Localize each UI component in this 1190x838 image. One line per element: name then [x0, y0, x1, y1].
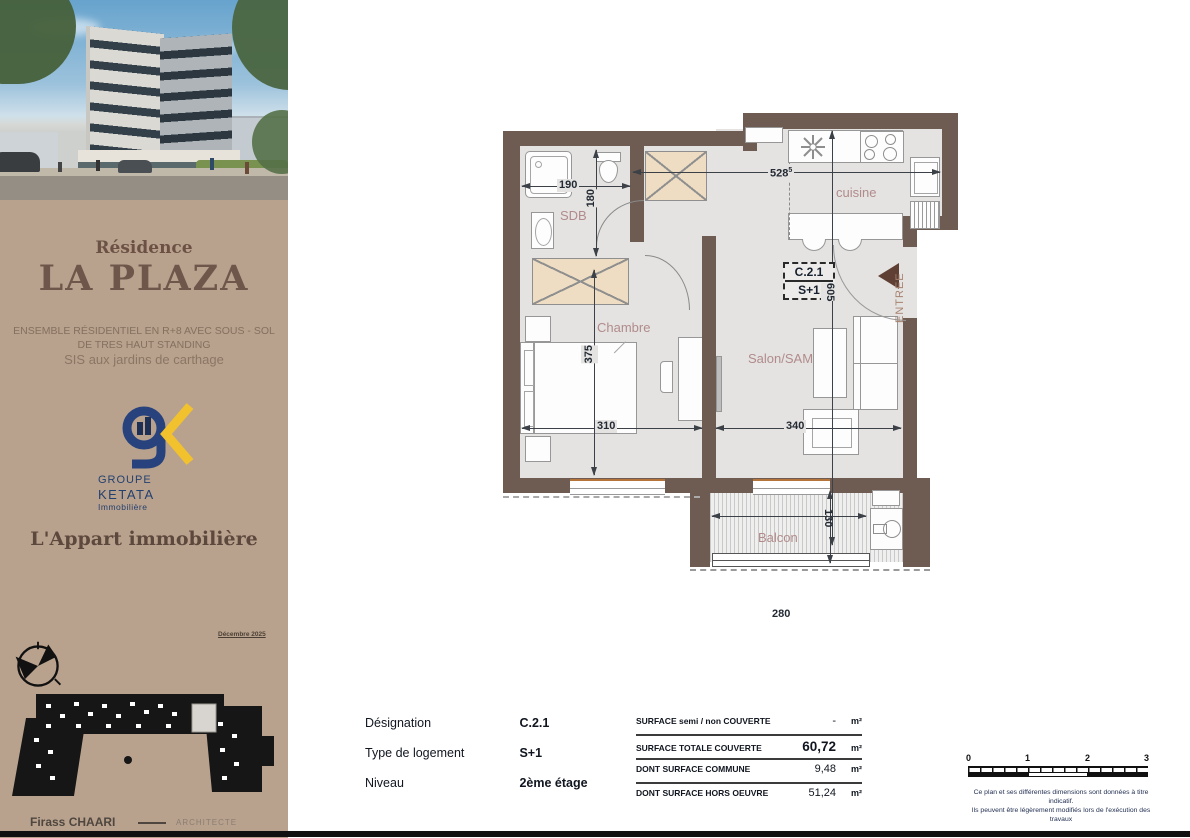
floor-plan: ENTREE C.2.1 S+1 190 180 5285 605 375 31… — [500, 105, 962, 580]
scale-tick-label: 1 — [1025, 753, 1030, 763]
info-label: Type de logement — [365, 746, 515, 760]
dim-label-balcony-width: 280 — [770, 608, 792, 621]
dim-total-width-value: 528 — [770, 168, 788, 180]
tv-panel — [716, 356, 722, 412]
scale-tick-label: 2 — [1085, 753, 1090, 763]
surface-value: 9,48 — [784, 763, 836, 775]
kitchen-vent — [910, 201, 940, 229]
wall-balcony-left — [690, 493, 710, 567]
living-window — [753, 479, 830, 495]
scale-tick-label: 0 — [966, 753, 971, 763]
nightstand — [525, 436, 551, 462]
dim-label-living-depth: 605 — [821, 283, 838, 301]
sofa-bottom — [803, 409, 859, 455]
surface-row: SURFACE semi / non COUVERTE - m² — [636, 712, 862, 736]
tree — [232, 0, 288, 90]
wall-kitchen-right — [942, 113, 958, 230]
surface-label: DONT SURFACE COMMUNE — [636, 764, 784, 774]
project-description-line1: ENSEMBLE RÉSIDENTIEL EN R+8 AVEC SOUS - … — [0, 325, 288, 337]
pedestrian — [245, 162, 249, 174]
surface-value: 51,24 — [784, 787, 836, 799]
unit-designation: C.2.1 — [785, 264, 833, 282]
bedroom-window — [570, 479, 665, 495]
page-bottom-rule — [0, 831, 1190, 837]
burner — [865, 135, 878, 148]
surface-value: 60,72 — [784, 739, 836, 754]
info-value: C.2.1 — [519, 716, 549, 730]
sidebar: Résidence LA PLAZA ENSEMBLE RÉSIDENTIEL … — [0, 0, 288, 838]
bed-fold-line — [614, 341, 637, 364]
stove — [860, 131, 904, 163]
pedestrian — [58, 162, 62, 172]
plan-dashed-edge-left — [503, 496, 700, 498]
logo-text-immobiliere: Immobilière — [98, 502, 147, 512]
balcony-window-box — [872, 490, 900, 506]
shower-drain — [535, 161, 542, 168]
agency-name: L'Appart immobilière — [0, 528, 288, 550]
room-label-salon: Salon/SAM — [748, 351, 813, 366]
dim-total-width-sup: 5 — [788, 167, 792, 174]
wall-left — [503, 131, 520, 493]
sofa-back-line — [860, 317, 861, 410]
dim-line-bedroom-depth — [594, 270, 595, 475]
architect-divider — [138, 822, 166, 824]
fridge — [910, 157, 940, 197]
surface-row: DONT SURFACE COMMUNE 9,48 m² — [636, 760, 862, 784]
pedestrian — [210, 158, 214, 170]
toilet-bowl — [599, 160, 618, 183]
room-label-cuisine: cuisine — [836, 185, 876, 200]
surface-unit: m² — [836, 716, 862, 726]
disclaimer-line1: Ce plan et ses différentes dimensions so… — [966, 788, 1156, 806]
surface-label: SURFACE TOTALE COUVERTE — [636, 743, 784, 753]
toilet — [596, 152, 619, 183]
scale-bar: 0 1 2 3 — [968, 753, 1150, 779]
disclaimer-line2: Ils peuvent être légèrement modifiés lor… — [966, 806, 1156, 824]
dim-label-bedroom-depth: 375 — [581, 345, 598, 363]
fridge-inner — [914, 162, 938, 194]
dim-label-balcony-depth: 130 — [819, 509, 836, 527]
pedestrian — [96, 160, 100, 171]
surface-row: SURFACE TOTALE COUVERTE 60,72 m² — [636, 736, 862, 760]
surface-unit: m² — [836, 764, 862, 774]
sink-basin — [535, 218, 552, 246]
dim-label-total-width: 5285 — [768, 164, 794, 181]
project-description-line2: DE TRES HAUT STANDING — [0, 339, 288, 351]
sofa-right — [853, 316, 898, 410]
room-label-balcon: Balcon — [758, 530, 798, 545]
bed-pillow — [524, 350, 534, 386]
surface-unit: m² — [836, 743, 862, 753]
kitchen-island — [788, 213, 903, 240]
logo-text-ketata: KETATA — [98, 487, 155, 502]
info-row: Type de logement S+1 — [365, 744, 625, 774]
entry-label: ENTREE — [894, 247, 906, 323]
surface-label: SURFACE semi / non COUVERTE — [636, 716, 784, 726]
surface-row: DONT SURFACE HORS OEUVRE 51,24 m² — [636, 784, 862, 808]
room-label-sdb: SDB — [560, 208, 587, 223]
dim-line-living-width — [716, 428, 901, 429]
info-row: Désignation C.2.1 — [365, 714, 625, 744]
surface-label: DONT SURFACE HORS OEUVRE — [636, 788, 784, 798]
car — [118, 160, 152, 173]
wall-right-lower — [903, 318, 917, 483]
burner — [883, 147, 897, 161]
wardrobe-hall — [645, 151, 707, 201]
dim-label-living-width: 340 — [784, 420, 806, 433]
dim-label-sdb-width: 190 — [557, 179, 579, 192]
dim-label-sdb-depth: 180 — [583, 189, 600, 207]
info-table: Désignation C.2.1 Type de logement S+1 N… — [365, 714, 625, 804]
wall-balcony-right — [903, 493, 930, 567]
bed — [520, 342, 637, 434]
project-name: LA PLAZA — [0, 258, 288, 299]
info-value: S+1 — [519, 746, 542, 760]
dim-line-living-depth — [832, 131, 833, 545]
nightstand — [525, 316, 551, 342]
car — [0, 152, 40, 172]
scale-segment-filled — [1088, 772, 1148, 777]
dim-label-bedroom-width: 310 — [595, 420, 617, 433]
architect-name: Firass CHAARI — [30, 815, 115, 829]
wall-top-left — [503, 131, 748, 146]
disclaimer: Ce plan et ses différentes dimensions so… — [966, 788, 1156, 824]
plan-date: Décembre 2025 — [218, 631, 266, 638]
burner — [864, 149, 875, 160]
balcony-dashed-edge — [690, 569, 930, 571]
surface-value: - — [784, 715, 836, 727]
info-label: Désignation — [365, 716, 515, 730]
logo-text-groupe: GROUPE — [98, 474, 152, 486]
info-label: Niveau — [365, 776, 515, 790]
wardrobe-bedroom — [532, 258, 629, 305]
tree — [0, 0, 76, 84]
shaft-box — [745, 127, 783, 143]
residence-label: Résidence — [0, 238, 288, 258]
wall-room-partition — [702, 236, 716, 478]
basin-faucet — [873, 524, 887, 534]
street — [0, 176, 288, 200]
burner — [885, 134, 896, 145]
bathroom-sink — [531, 212, 554, 249]
site-plan-map — [6, 678, 282, 798]
surface-unit: m² — [836, 788, 862, 798]
desk-chair — [660, 361, 673, 393]
architect-title: ARCHITECTE — [176, 818, 237, 827]
info-value: 2ème étage — [519, 776, 587, 790]
scale-segment-open — [1028, 772, 1088, 777]
bed-pillow — [524, 391, 534, 427]
dim-line-balcony-width — [712, 516, 866, 517]
scale-segment-filled — [968, 772, 1028, 777]
coffee-table — [813, 328, 847, 398]
room-label-chambre: Chambre — [597, 320, 650, 335]
balcony-railing — [712, 553, 870, 567]
surface-table: SURFACE semi / non COUVERTE - m² SURFACE… — [636, 712, 862, 808]
info-row: Niveau 2ème étage — [365, 774, 625, 804]
scale-tick-label: 3 — [1144, 753, 1149, 763]
kitchen-sink-icon — [800, 134, 826, 160]
wall-bottom — [503, 478, 930, 493]
project-description-line3: SIS aux jardins de carthage — [0, 352, 288, 367]
building-rendering-photo — [0, 0, 288, 200]
balcony-wash-basin — [870, 508, 903, 550]
